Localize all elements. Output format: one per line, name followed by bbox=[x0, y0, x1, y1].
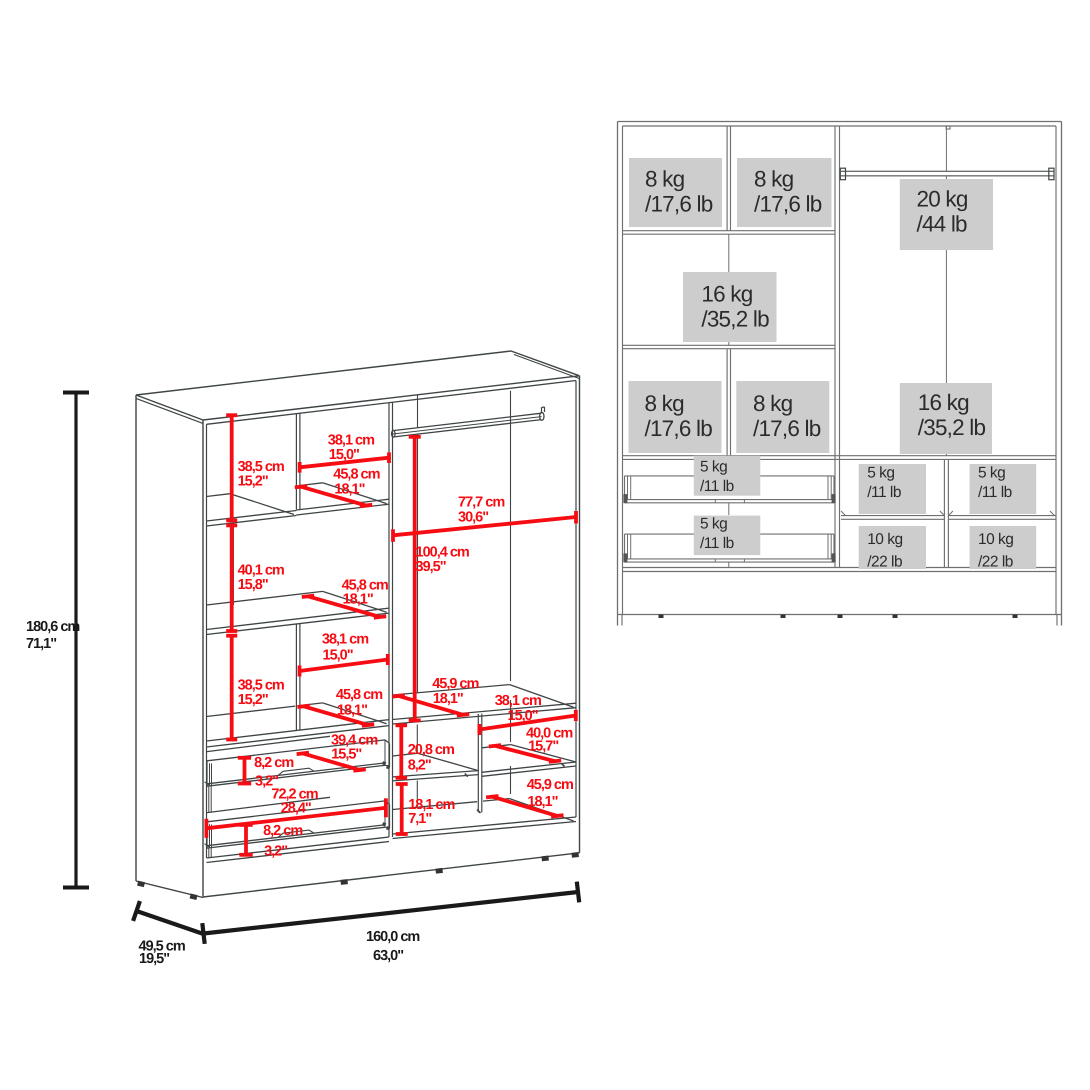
svg-text:15,7": 15,7" bbox=[528, 739, 558, 755]
svg-text:15,5": 15,5" bbox=[331, 747, 361, 763]
svg-text:/11 lb: /11 lb bbox=[978, 484, 1012, 501]
svg-text:45,8 cm: 45,8 cm bbox=[336, 687, 382, 703]
svg-text:16 kg: 16 kg bbox=[701, 282, 752, 307]
svg-text:45,9 cm: 45,9 cm bbox=[527, 777, 573, 793]
svg-text:8,2 cm: 8,2 cm bbox=[254, 755, 293, 771]
svg-text:/17,6 lb: /17,6 lb bbox=[754, 192, 822, 217]
svg-text:19,5": 19,5" bbox=[139, 951, 169, 967]
svg-text:/35,2 lb: /35,2 lb bbox=[701, 307, 769, 332]
svg-text:5 kg: 5 kg bbox=[867, 464, 894, 481]
svg-text:8 kg: 8 kg bbox=[753, 391, 793, 416]
svg-text:20 kg: 20 kg bbox=[917, 187, 968, 212]
svg-text:15,8": 15,8" bbox=[238, 577, 268, 593]
svg-text:10 kg: 10 kg bbox=[978, 531, 1013, 548]
svg-text:15,0": 15,0" bbox=[329, 447, 359, 463]
svg-text:77,7 cm: 77,7 cm bbox=[458, 495, 504, 511]
svg-text:15,0": 15,0" bbox=[508, 708, 538, 724]
svg-text:10 kg: 10 kg bbox=[867, 531, 902, 548]
svg-text:8 kg: 8 kg bbox=[645, 167, 685, 192]
svg-text:7,1": 7,1" bbox=[408, 811, 431, 827]
svg-text:39,5": 39,5" bbox=[416, 559, 446, 575]
svg-text:30,6": 30,6" bbox=[458, 510, 488, 526]
svg-text:15,0": 15,0" bbox=[323, 648, 353, 664]
svg-text:8,2 cm: 8,2 cm bbox=[263, 823, 302, 839]
svg-text:5 kg: 5 kg bbox=[700, 516, 727, 533]
svg-text:/44 lb: /44 lb bbox=[917, 212, 968, 237]
svg-text:180,6 cm: 180,6 cm bbox=[26, 619, 79, 635]
svg-text:/11 lb: /11 lb bbox=[700, 535, 734, 552]
svg-text:8,2": 8,2" bbox=[408, 757, 431, 773]
svg-text:/17,6 lb: /17,6 lb bbox=[645, 416, 713, 441]
svg-text:/22 lb: /22 lb bbox=[867, 554, 902, 571]
svg-text:16 kg: 16 kg bbox=[918, 390, 969, 415]
svg-text:45,8 cm: 45,8 cm bbox=[333, 467, 379, 483]
svg-text:/35,2 lb: /35,2 lb bbox=[918, 415, 986, 440]
svg-text:5 kg: 5 kg bbox=[700, 459, 727, 476]
svg-text:20,8 cm: 20,8 cm bbox=[408, 742, 454, 758]
svg-text:8 kg: 8 kg bbox=[754, 167, 794, 192]
svg-text:5 kg: 5 kg bbox=[978, 464, 1005, 481]
svg-text:18,1": 18,1" bbox=[433, 691, 463, 707]
svg-text:/17,6 lb: /17,6 lb bbox=[753, 416, 821, 441]
svg-text:15,2": 15,2" bbox=[238, 473, 268, 489]
svg-text:63,0": 63,0" bbox=[373, 948, 403, 964]
svg-text:38,1 cm: 38,1 cm bbox=[322, 632, 368, 648]
svg-text:/11 lb: /11 lb bbox=[867, 484, 901, 501]
svg-text:18,1": 18,1" bbox=[337, 703, 367, 719]
svg-text:8 kg: 8 kg bbox=[645, 391, 685, 416]
svg-text:/22 lb: /22 lb bbox=[978, 554, 1013, 571]
svg-text:18,1": 18,1" bbox=[527, 794, 557, 810]
svg-text:/17,6 lb: /17,6 lb bbox=[645, 192, 713, 217]
svg-text:15,2": 15,2" bbox=[238, 692, 268, 708]
svg-text:71,1": 71,1" bbox=[26, 636, 56, 652]
svg-text:45,9 cm: 45,9 cm bbox=[432, 676, 478, 692]
svg-text:160,0 cm: 160,0 cm bbox=[366, 929, 419, 945]
svg-text:38,1 cm: 38,1 cm bbox=[495, 693, 541, 709]
svg-text:28,4": 28,4" bbox=[281, 801, 311, 817]
svg-text:/11 lb: /11 lb bbox=[700, 478, 734, 495]
svg-text:18,1": 18,1" bbox=[334, 481, 364, 497]
svg-text:3,2": 3,2" bbox=[264, 844, 287, 860]
svg-text:18,1": 18,1" bbox=[343, 591, 373, 607]
